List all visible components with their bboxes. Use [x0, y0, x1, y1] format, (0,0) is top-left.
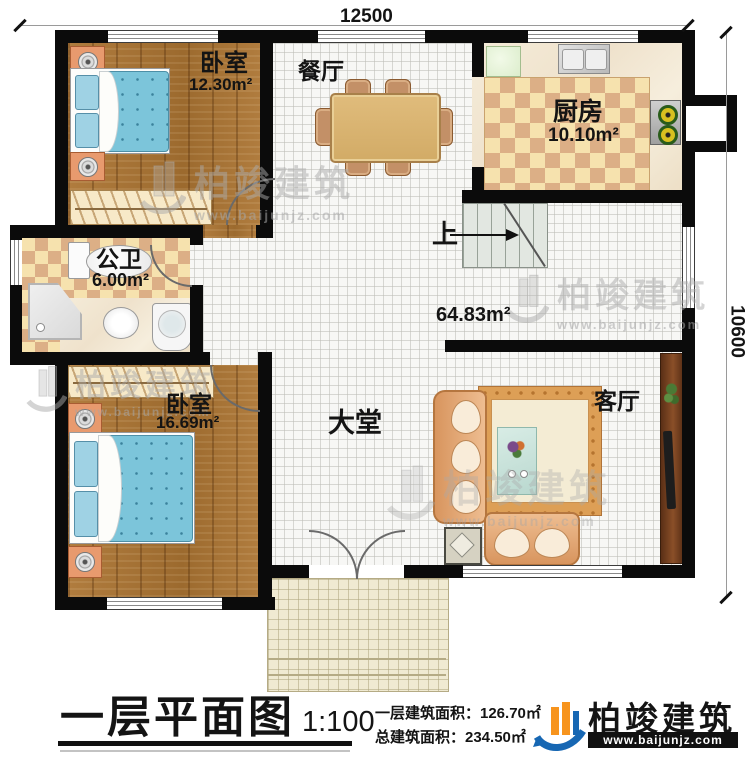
- flue-box-inner: [686, 106, 726, 141]
- nightstand: [68, 546, 102, 578]
- wall: [10, 352, 210, 365]
- lamp-icon: [78, 157, 98, 177]
- wardrobe: [70, 190, 212, 225]
- room-label-kitchen: 厨房: [553, 100, 603, 125]
- total-area-text: 总建筑面积：234.50㎡: [375, 730, 526, 745]
- nightstand: [68, 403, 102, 434]
- plant-icon: [664, 380, 679, 410]
- sink-basin: [585, 49, 607, 70]
- room-area-kitchen: 10.10m²: [548, 126, 619, 145]
- wall: [472, 30, 484, 77]
- room-label-dining: 餐厅: [298, 60, 344, 83]
- sofa-cushion: [451, 400, 481, 434]
- window: [108, 30, 218, 43]
- title-underline-thin: [60, 750, 350, 752]
- cup-icon: [508, 470, 516, 478]
- room-label-hall: 大堂: [328, 410, 382, 437]
- room-label-bathroom: 公卫: [96, 248, 142, 271]
- window: [463, 565, 622, 578]
- wall: [462, 190, 695, 203]
- bed: [69, 432, 195, 544]
- room-label-bedroom1: 卧室: [200, 52, 248, 76]
- lamp-icon: [75, 409, 95, 429]
- sofa-cushion: [494, 528, 530, 558]
- window: [528, 30, 638, 43]
- table-lamp-icon: [449, 532, 474, 557]
- flower-decor-icon: [506, 438, 526, 460]
- sink-basin: [562, 49, 584, 70]
- dimension-right-value: 10600: [728, 302, 747, 362]
- plan-scale: 1:100: [302, 708, 375, 737]
- sofa: [433, 390, 487, 524]
- washer-drum: [158, 310, 186, 338]
- sofa-cushion: [534, 528, 570, 558]
- corner-table: [444, 527, 482, 565]
- title-underline: [58, 741, 352, 746]
- brand-logo-name: 柏竣建筑: [588, 702, 736, 735]
- sofa-cushion: [451, 440, 481, 474]
- room-area-bathroom: 6.00m²: [92, 271, 149, 289]
- floor-area-text: 一层建筑面积：126.70㎡: [375, 706, 541, 721]
- brand-logo-strip: www.baijunjz.com: [588, 732, 738, 748]
- brand-logo-icon: [531, 699, 587, 755]
- washing-machine: [152, 303, 192, 351]
- stairs-arrowhead-icon: [506, 229, 519, 241]
- window: [10, 240, 22, 285]
- refrigerator: [486, 46, 521, 77]
- room-label-living: 客厅: [594, 390, 640, 413]
- sofa: [484, 512, 580, 566]
- wall: [55, 30, 68, 238]
- pillow: [75, 113, 99, 148]
- brand-logo: 柏竣建筑 www.baijunjz.com: [531, 699, 741, 757]
- pillow: [74, 491, 98, 537]
- pedestal-sink: [103, 307, 139, 339]
- kitchen-sink: [558, 44, 610, 74]
- brand-logo-site: www.baijunjz.com: [603, 733, 723, 747]
- tv-cabinet: [660, 353, 684, 564]
- room-area-hall: 64.83m²: [436, 305, 511, 325]
- stairs-up-label: 上: [432, 221, 458, 247]
- burner-icon: [658, 125, 678, 145]
- porch-step-line: [268, 674, 446, 676]
- pillow: [75, 75, 99, 110]
- wall: [258, 352, 272, 610]
- wall: [190, 285, 203, 365]
- tv-icon: [663, 431, 676, 509]
- room-area-bedroom2: 16.69m²: [156, 414, 219, 431]
- plan-title: 一层平面图: [60, 696, 295, 740]
- pillow: [74, 441, 98, 487]
- lamp-icon: [75, 552, 95, 572]
- dimension-top-value: 12500: [340, 7, 393, 26]
- wardrobe-rod: [75, 208, 207, 210]
- window: [682, 227, 695, 308]
- bedroom1-door-threshold: [203, 225, 256, 238]
- window: [318, 30, 425, 43]
- shower-drain-icon: [36, 323, 45, 332]
- sofa-cushion: [451, 480, 481, 514]
- wall: [55, 352, 68, 610]
- stairs-direction-arrow: [450, 234, 508, 236]
- porch-step-line: [268, 658, 446, 660]
- coffee-table: [497, 427, 537, 495]
- cup-icon: [520, 470, 528, 478]
- bed: [70, 68, 170, 154]
- wardrobe-rod: [73, 382, 208, 384]
- floor-plan-canvas: 柏竣建筑 www.baijunjz.com 柏竣建筑 www.baijunjz.…: [0, 0, 750, 761]
- wall: [256, 225, 273, 238]
- dining-table: [330, 93, 441, 163]
- wall: [445, 340, 682, 352]
- wall: [10, 225, 203, 238]
- room-area-bedroom1: 12.30m²: [189, 76, 252, 93]
- window: [107, 597, 222, 610]
- burner-icon: [658, 105, 678, 125]
- wall: [190, 225, 203, 245]
- stove: [650, 100, 681, 145]
- nightstand: [70, 152, 105, 181]
